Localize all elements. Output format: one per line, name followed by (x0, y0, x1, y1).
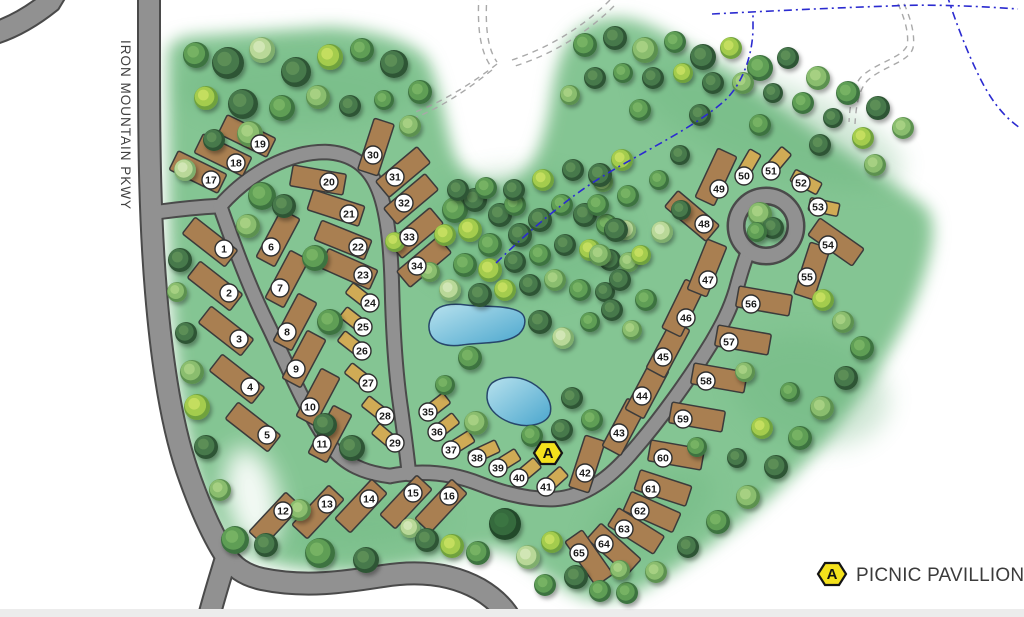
tree (249, 37, 275, 63)
svg-text:10: 10 (304, 402, 316, 414)
tree (677, 536, 699, 558)
tree (562, 159, 584, 181)
tree (588, 163, 612, 187)
svg-text:59: 59 (677, 414, 689, 426)
svg-text:55: 55 (801, 272, 813, 284)
tree (850, 336, 874, 360)
site-badge-38: 38 (468, 449, 486, 467)
tree (589, 244, 611, 266)
tree (184, 394, 210, 420)
site-badge-40: 40 (510, 469, 528, 487)
tree (541, 531, 563, 553)
svg-text:27: 27 (362, 378, 374, 390)
site-badge-34: 34 (408, 257, 426, 275)
pavilion-marker-A: A (534, 442, 562, 464)
svg-text:29: 29 (389, 438, 401, 450)
site-badge-59: 59 (674, 410, 692, 428)
site-badge-36: 36 (428, 423, 446, 441)
tree (810, 396, 834, 420)
site-badge-25: 25 (354, 318, 372, 336)
tree (613, 63, 633, 83)
site-badge-58: 58 (697, 372, 715, 390)
tree (702, 72, 724, 94)
tree (468, 283, 492, 307)
tree (489, 508, 521, 540)
tree (339, 435, 365, 461)
site-badge-54: 54 (819, 236, 837, 254)
tree (631, 245, 651, 265)
site-badge-13: 13 (318, 495, 336, 513)
site-badge-53: 53 (809, 198, 827, 216)
tree (466, 541, 490, 565)
site-badge-21: 21 (340, 205, 358, 223)
site-badge-32: 32 (395, 194, 413, 212)
tree (617, 185, 639, 207)
svg-text:54: 54 (822, 240, 834, 252)
tree (645, 561, 667, 583)
tree (380, 50, 408, 78)
tree (306, 85, 330, 109)
tree (435, 375, 455, 395)
site-badge-47: 47 (699, 271, 717, 289)
tree (616, 582, 638, 604)
tree (180, 360, 204, 384)
tree (475, 177, 497, 199)
tree (809, 134, 831, 156)
tree (534, 574, 556, 596)
tree (812, 289, 834, 311)
site-badge-63: 63 (615, 520, 633, 538)
svg-text:39: 39 (492, 463, 504, 475)
site-badge-35: 35 (419, 403, 437, 421)
site-badge-62: 62 (631, 502, 649, 520)
svg-text:22: 22 (352, 242, 364, 254)
tree (236, 214, 260, 238)
site-badge-20: 20 (320, 173, 338, 191)
site-badge-42: 42 (576, 464, 594, 482)
tree (788, 426, 812, 450)
svg-text:42: 42 (579, 468, 591, 480)
site-badge-55: 55 (798, 268, 816, 286)
svg-text:40: 40 (513, 473, 525, 485)
site-badge-27: 27 (359, 374, 377, 392)
site-badge-61: 61 (642, 480, 660, 498)
tree (528, 310, 552, 334)
tree (763, 83, 783, 103)
svg-text:60: 60 (657, 453, 669, 465)
site-badge-29: 29 (386, 434, 404, 452)
tree (751, 417, 773, 439)
tree (604, 218, 628, 242)
tree (248, 182, 276, 210)
tree (573, 33, 597, 57)
svg-text:6: 6 (268, 242, 274, 254)
tree (209, 479, 231, 501)
road-name-label: IRON MOUNTAIN PKWY (118, 40, 133, 210)
map-canvas: 1234567891011121314151617181920212223242… (0, 0, 1024, 617)
tree (167, 282, 187, 302)
site-badge-8: 8 (278, 323, 296, 341)
picnic-pavilion-marker: A (534, 442, 562, 464)
site-badge-45: 45 (654, 348, 672, 366)
tree (649, 170, 669, 190)
svg-text:16: 16 (443, 491, 455, 503)
tree (601, 299, 623, 321)
site-badge-4: 4 (241, 378, 259, 396)
tree (651, 221, 673, 243)
svg-text:18: 18 (230, 158, 242, 170)
tree (584, 67, 606, 89)
site-badge-3: 3 (230, 330, 248, 348)
svg-text:2: 2 (226, 288, 232, 300)
tree (687, 437, 707, 457)
tree (504, 251, 526, 273)
tree (610, 560, 630, 580)
svg-text:9: 9 (293, 364, 299, 376)
svg-text:19: 19 (254, 139, 266, 151)
tree (670, 145, 690, 165)
site-badge-33: 33 (400, 228, 418, 246)
tree (622, 320, 642, 340)
site-badge-23: 23 (354, 266, 372, 284)
tree (727, 448, 747, 468)
tree (551, 194, 573, 216)
tree (866, 96, 890, 120)
tree (764, 455, 788, 479)
svg-text:1: 1 (221, 244, 227, 256)
svg-text:14: 14 (363, 494, 375, 506)
site-badge-22: 22 (349, 238, 367, 256)
svg-text:45: 45 (657, 352, 669, 364)
site-badge-28: 28 (376, 407, 394, 425)
legend-label: PICNIC PAVILLION (856, 565, 1024, 586)
svg-text:58: 58 (700, 376, 712, 388)
tree (832, 311, 854, 333)
tree (564, 565, 588, 589)
site-badge-51: 51 (762, 162, 780, 180)
svg-text:64: 64 (598, 539, 610, 551)
tree (174, 159, 196, 181)
tree (554, 234, 576, 256)
site-badge-41: 41 (537, 478, 555, 496)
tree (175, 322, 197, 344)
tree (735, 362, 755, 382)
site-badge-49: 49 (710, 180, 728, 198)
site-badge-24: 24 (361, 294, 379, 312)
svg-text:8: 8 (284, 327, 290, 339)
tree (529, 244, 551, 266)
tree (317, 44, 343, 70)
site-badge-44: 44 (633, 387, 651, 405)
tree (892, 117, 914, 139)
svg-text:49: 49 (713, 184, 725, 196)
svg-text:50: 50 (738, 171, 750, 183)
tree (503, 179, 525, 201)
svg-text:31: 31 (389, 172, 401, 184)
site-badge-46: 46 (677, 309, 695, 327)
tree (519, 274, 541, 296)
site-badge-26: 26 (353, 342, 371, 360)
site-badge-18: 18 (227, 154, 245, 172)
svg-text:47: 47 (702, 275, 714, 287)
svg-text:25: 25 (357, 322, 369, 334)
site-badge-10: 10 (301, 398, 319, 416)
tree (447, 179, 469, 201)
svg-text:37: 37 (445, 445, 457, 457)
site-badge-5: 5 (258, 426, 276, 444)
tree (664, 31, 686, 53)
tree (544, 269, 566, 291)
site-badge-57: 57 (720, 333, 738, 351)
campground-site-map: 1234567891011121314151617181920212223242… (0, 0, 1024, 617)
tree (569, 279, 591, 301)
svg-text:52: 52 (795, 178, 807, 190)
tree (609, 269, 631, 291)
tree (864, 154, 886, 176)
tree (823, 108, 843, 128)
site-badge-15: 15 (404, 484, 422, 502)
svg-text:41: 41 (540, 482, 552, 494)
tree (690, 44, 716, 70)
site-badge-16: 16 (440, 487, 458, 505)
tree (313, 413, 337, 437)
svg-text:44: 44 (636, 391, 648, 403)
site-badge-65: 65 (570, 544, 588, 562)
tree (458, 218, 482, 242)
svg-text:28: 28 (379, 411, 391, 423)
tree (194, 435, 218, 459)
svg-text:20: 20 (323, 177, 335, 189)
tree (673, 63, 693, 83)
svg-text:56: 56 (745, 299, 757, 311)
tree (281, 57, 311, 87)
tree (399, 115, 421, 137)
tree (228, 89, 258, 119)
tree (780, 382, 800, 402)
tree (440, 534, 464, 558)
tree (792, 92, 814, 114)
svg-text:61: 61 (645, 484, 657, 496)
tree (581, 409, 603, 431)
svg-text:33: 33 (403, 232, 415, 244)
tree (374, 90, 394, 110)
tree (635, 289, 657, 311)
site-badge-7: 7 (271, 279, 289, 297)
tree (852, 127, 874, 149)
tree (777, 47, 799, 69)
tree (587, 194, 609, 216)
svg-text:11: 11 (316, 439, 327, 451)
tree (494, 279, 516, 301)
road-surface (158, 206, 220, 212)
tree (203, 129, 225, 151)
tree (836, 81, 860, 105)
tree (269, 95, 295, 121)
tree (551, 419, 573, 441)
site-badge-52: 52 (792, 174, 810, 192)
site-badge-48: 48 (695, 215, 713, 233)
site-badge-56: 56 (742, 295, 760, 313)
svg-text:23: 23 (357, 270, 369, 282)
tree (464, 411, 488, 435)
site-badge-1: 1 (215, 240, 233, 258)
tree (168, 248, 192, 272)
svg-text:24: 24 (364, 298, 376, 310)
tree (560, 85, 580, 105)
tree (516, 545, 540, 569)
tree (589, 580, 611, 602)
site-badge-11: 11 (313, 435, 331, 453)
tree (408, 80, 432, 104)
tree (439, 279, 461, 301)
tree (317, 309, 343, 335)
tree (806, 66, 830, 90)
svg-text:5: 5 (264, 430, 270, 442)
svg-text:17: 17 (205, 175, 217, 187)
tree (453, 253, 477, 277)
tree (221, 526, 249, 554)
svg-text:62: 62 (634, 506, 646, 518)
site-badge-9: 9 (287, 360, 305, 378)
site-badge-43: 43 (610, 424, 628, 442)
tree (603, 26, 627, 50)
tree (528, 208, 552, 232)
tree (194, 86, 218, 110)
pond (429, 304, 525, 345)
tree (458, 346, 482, 370)
site-badge-12: 12 (274, 502, 292, 520)
svg-text:35: 35 (422, 407, 434, 419)
tree (305, 538, 335, 568)
tree (749, 114, 771, 136)
tree (302, 245, 328, 271)
tree (632, 37, 658, 63)
legend-marker-letter: A (827, 566, 838, 583)
tree (508, 223, 532, 247)
tree (212, 47, 244, 79)
tree (642, 67, 664, 89)
tree (532, 169, 554, 191)
tree (353, 547, 379, 573)
tree (415, 528, 439, 552)
svg-text:30: 30 (367, 150, 379, 162)
site-badge-39: 39 (489, 459, 507, 477)
svg-text:32: 32 (398, 198, 410, 210)
site-badge-60: 60 (654, 449, 672, 467)
site-badge-17: 17 (202, 171, 220, 189)
svg-text:53: 53 (812, 202, 824, 214)
svg-text:43: 43 (613, 428, 625, 440)
tree (339, 95, 361, 117)
svg-text:38: 38 (471, 453, 483, 465)
svg-text:4: 4 (247, 382, 253, 394)
tree (254, 533, 278, 557)
site-badge-2: 2 (220, 284, 238, 302)
svg-text:21: 21 (343, 209, 355, 221)
tree (434, 224, 456, 246)
svg-text:26: 26 (356, 346, 368, 358)
site-badge-19: 19 (251, 135, 269, 153)
tree (552, 327, 574, 349)
svg-text:48: 48 (698, 219, 710, 231)
svg-text:63: 63 (618, 524, 630, 536)
svg-text:65: 65 (573, 548, 585, 560)
svg-text:13: 13 (321, 499, 333, 511)
tree (580, 312, 600, 332)
tree (272, 194, 296, 218)
bottom-strip (0, 609, 1024, 617)
svg-text:7: 7 (277, 283, 283, 295)
tree (706, 510, 730, 534)
svg-text:3: 3 (236, 334, 242, 346)
bottom-strip-band (0, 609, 1024, 617)
site-badge-64: 64 (595, 535, 613, 553)
site-badge-50: 50 (735, 167, 753, 185)
site-badge-6: 6 (262, 238, 280, 256)
svg-text:A: A (543, 445, 554, 462)
tree (629, 99, 651, 121)
tree (736, 485, 760, 509)
site-badge-37: 37 (442, 441, 460, 459)
svg-text:12: 12 (277, 506, 289, 518)
svg-text:15: 15 (407, 488, 419, 500)
tree (747, 222, 767, 242)
svg-text:36: 36 (431, 427, 443, 439)
site-badge-30: 30 (364, 146, 382, 164)
svg-text:51: 51 (765, 166, 777, 178)
site-badge-14: 14 (360, 490, 378, 508)
svg-text:34: 34 (411, 261, 423, 273)
tree (561, 387, 583, 409)
tree (350, 38, 374, 62)
tree (671, 200, 691, 220)
tree (478, 233, 502, 257)
tree (720, 37, 742, 59)
tree (183, 42, 209, 68)
svg-text:46: 46 (680, 313, 692, 325)
tree (834, 366, 858, 390)
svg-text:57: 57 (723, 337, 735, 349)
site-badge-31: 31 (386, 168, 404, 186)
